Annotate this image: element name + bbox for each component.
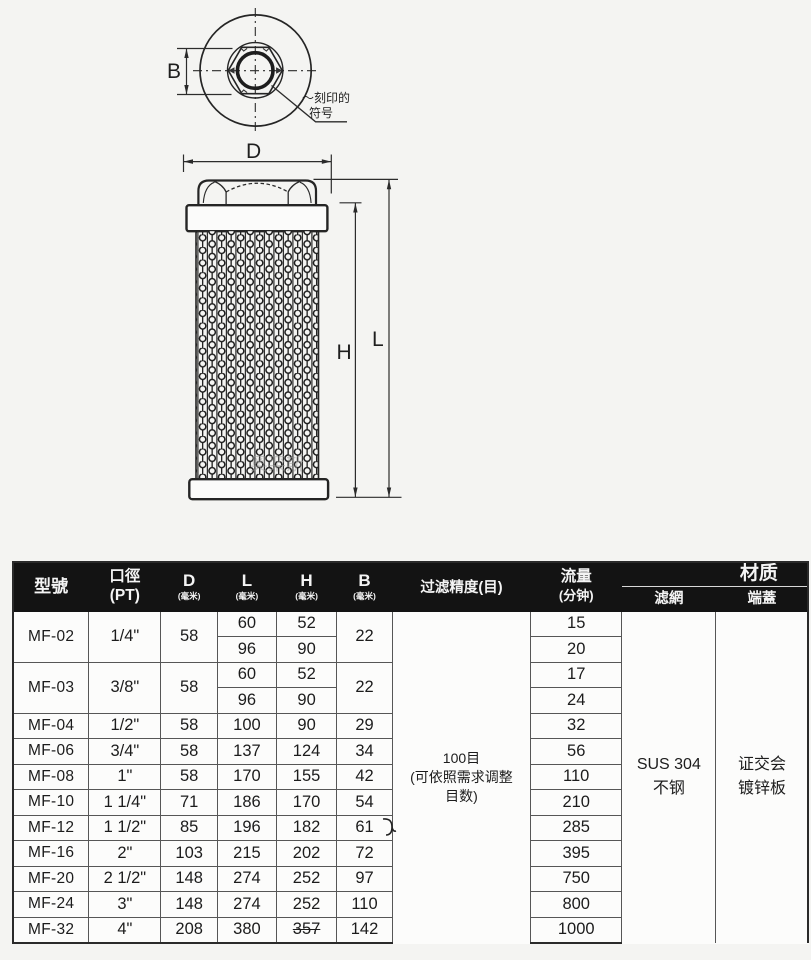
svg-text:符号: 符号 [309, 105, 333, 120]
svg-text:B: B [167, 60, 181, 83]
svg-text:～刻印的: ～刻印的 [302, 90, 350, 105]
svg-text:奥栾斯: 奥栾斯 [250, 454, 304, 474]
svg-text:L: L [372, 328, 384, 351]
svg-text:H: H [337, 341, 352, 364]
svg-text:D: D [246, 140, 261, 163]
